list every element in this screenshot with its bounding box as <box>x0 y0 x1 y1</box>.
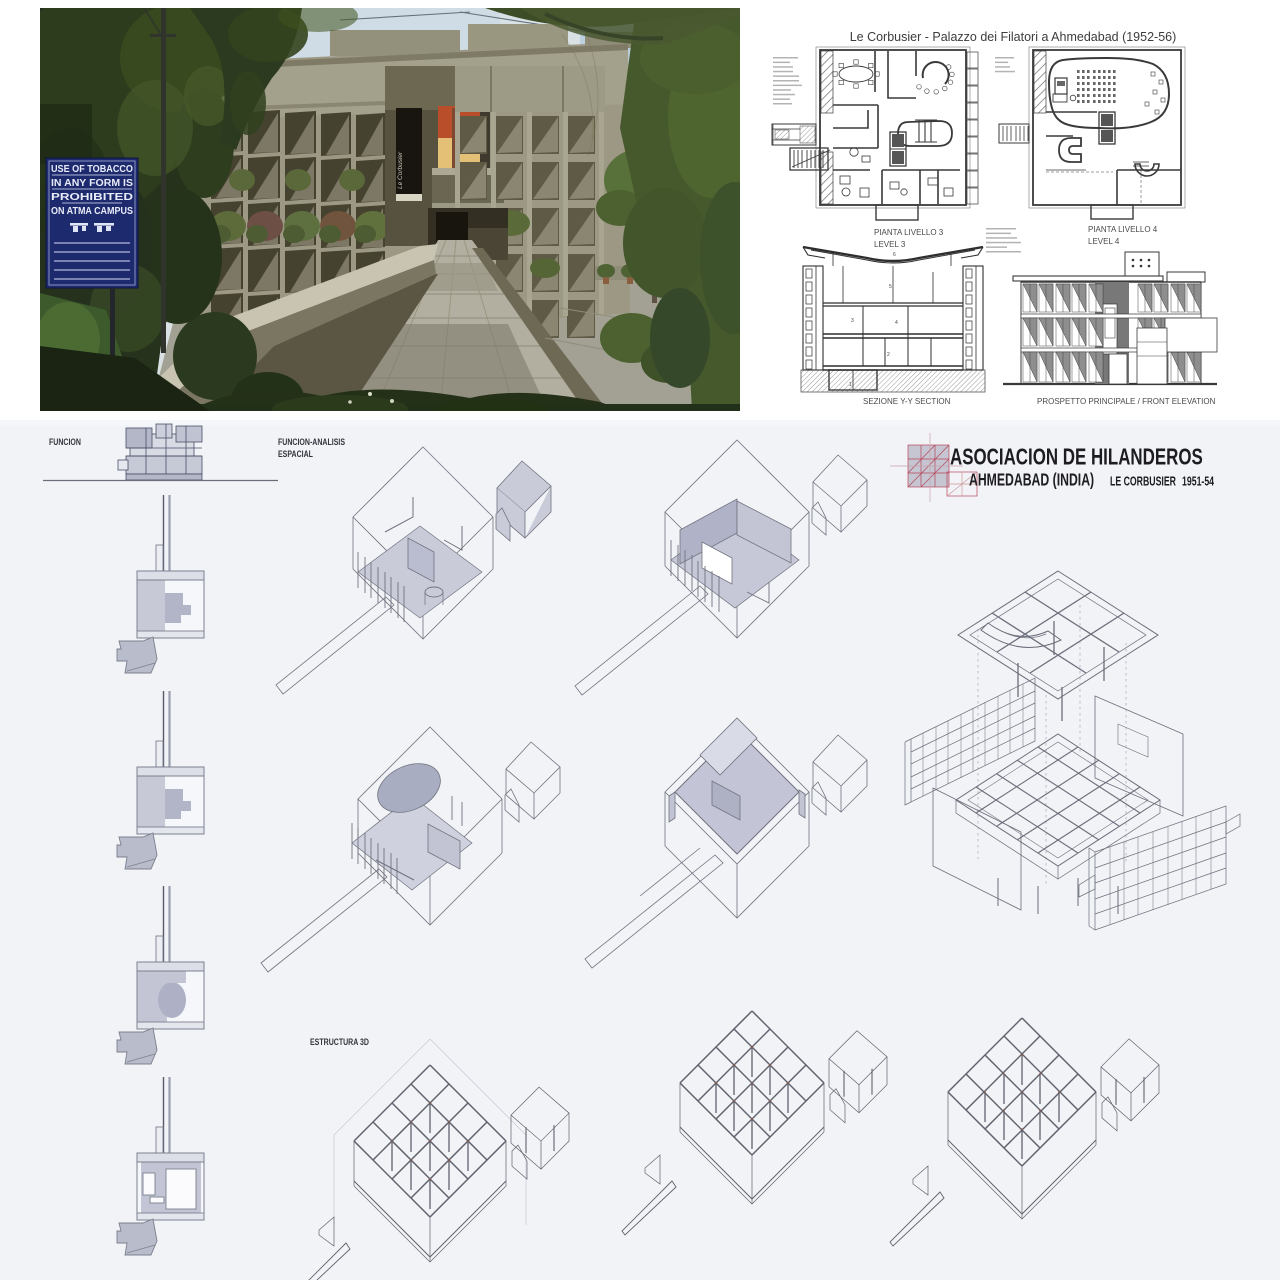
svg-text:PIANTA LIVELLO 4: PIANTA LIVELLO 4 <box>1088 225 1158 234</box>
svg-text:2: 2 <box>887 352 890 358</box>
svg-text:FUNCION: FUNCION <box>49 437 81 447</box>
svg-text:1: 1 <box>849 382 852 388</box>
svg-text:1951-54: 1951-54 <box>1182 475 1214 489</box>
svg-text:SEZIONE Y-Y SECTION: SEZIONE Y-Y SECTION <box>863 397 951 406</box>
svg-text:FUNCION-ANALISIS: FUNCION-ANALISIS <box>278 437 346 447</box>
svg-text:5: 5 <box>889 284 892 290</box>
svg-text:PROSPETTO PRINCIPALE / FRONT: PROSPETTO PRINCIPALE / FRONT ELEVATION <box>1037 397 1216 406</box>
svg-text:ASOCIACION DE HILANDEROS: ASOCIACION DE HILANDEROS <box>950 444 1203 470</box>
svg-text:USE OF TOBACCO: USE OF TOBACCO <box>51 164 133 175</box>
svg-text:PROHIBITED: PROHIBITED <box>51 192 133 203</box>
svg-text:AHMEDABAD (INDIA): AHMEDABAD (INDIA) <box>969 470 1094 490</box>
svg-text:Le Corbusier - Palazzo dei Fil: Le Corbusier - Palazzo dei Filatori a Ah… <box>850 30 1177 44</box>
svg-text:6: 6 <box>893 252 896 258</box>
svg-text:LE CORBUSIER: LE CORBUSIER <box>1110 475 1176 489</box>
svg-text:3: 3 <box>851 318 854 324</box>
svg-text:ON ATMA CAMPUS: ON ATMA CAMPUS <box>51 206 133 217</box>
svg-text:4: 4 <box>895 320 898 326</box>
svg-text:Le Corbusier: Le Corbusier <box>397 151 404 189</box>
svg-text:IN ANY FORM IS: IN ANY FORM IS <box>51 178 133 189</box>
svg-text:LEVEL 4: LEVEL 4 <box>1088 237 1120 246</box>
svg-text:LEVEL 3: LEVEL 3 <box>874 240 906 249</box>
svg-text:PIANTA LIVELLO 3: PIANTA LIVELLO 3 <box>874 228 944 237</box>
svg-text:ESPACIAL: ESPACIAL <box>278 449 313 459</box>
svg-text:ESTRUCTURA 3D: ESTRUCTURA 3D <box>310 1037 369 1047</box>
